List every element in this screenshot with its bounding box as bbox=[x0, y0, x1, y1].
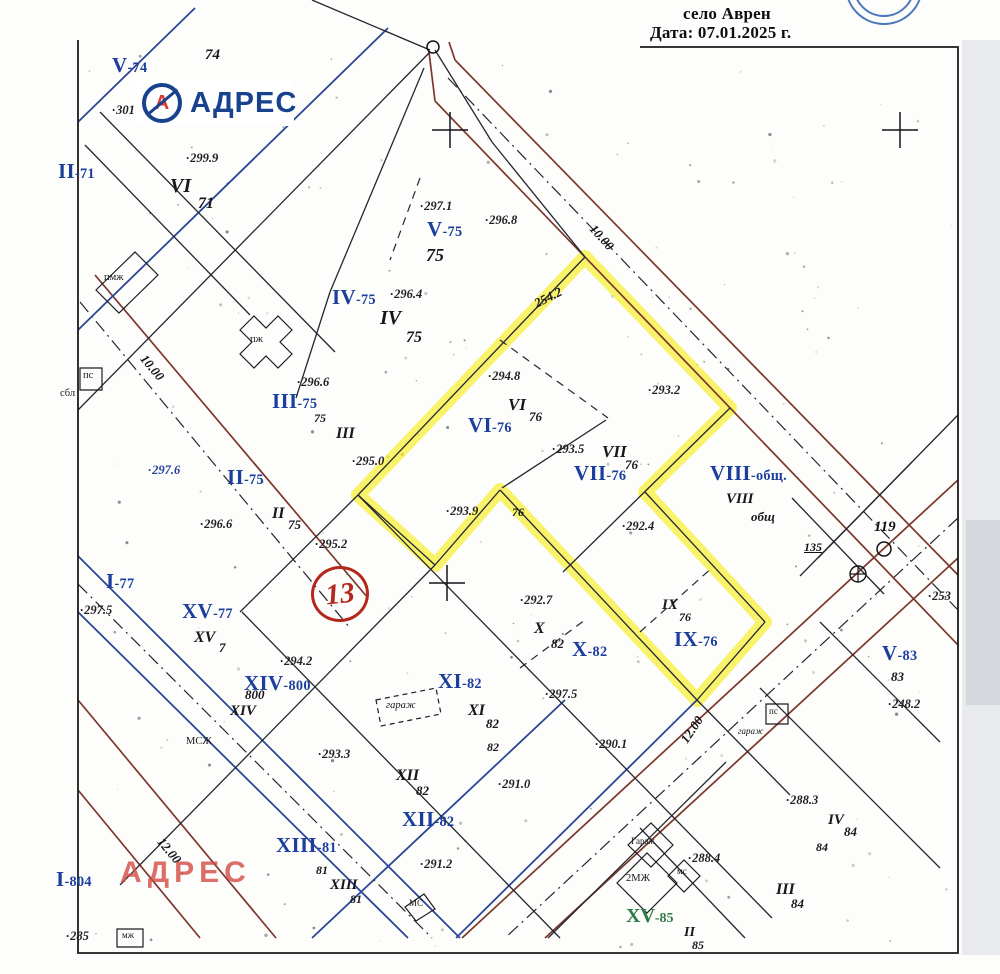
scan-speckle bbox=[648, 464, 650, 466]
parcel-label: XIII-81 bbox=[276, 834, 337, 856]
elevation-label: 297.6 bbox=[148, 464, 180, 477]
scan-speckle bbox=[562, 633, 564, 635]
point-marker-ring bbox=[427, 41, 439, 53]
scan-speckle bbox=[677, 435, 679, 437]
scan-speckle bbox=[542, 697, 544, 699]
scan-speckle bbox=[89, 70, 91, 72]
scan-speckle bbox=[661, 744, 662, 745]
building-label: гараж bbox=[738, 727, 763, 736]
scan-speckle bbox=[453, 354, 455, 356]
parcel-label: XI-82 bbox=[438, 670, 482, 692]
scan-speckle bbox=[803, 266, 805, 268]
parcel-boundary-line bbox=[492, 142, 585, 257]
elevation-label: 296.4 bbox=[390, 288, 422, 301]
elevation-label: 294.2 bbox=[280, 655, 312, 668]
handwritten-parcel-label: 76 bbox=[512, 506, 524, 519]
scan-speckle bbox=[814, 298, 815, 299]
elevation-label: 253 bbox=[928, 590, 951, 603]
scan-speckle bbox=[833, 492, 835, 494]
elevation-label: 296.8 bbox=[485, 214, 517, 227]
elevation-label: 288.4 bbox=[688, 852, 720, 865]
scan-speckle bbox=[672, 721, 673, 722]
scan-speckle bbox=[812, 671, 815, 674]
scan-speckle bbox=[590, 808, 592, 810]
building-label: мс bbox=[677, 867, 687, 876]
parcel-boundary-line bbox=[312, 0, 430, 50]
map-frame bbox=[78, 40, 958, 953]
point-number-label: 135 bbox=[804, 541, 822, 554]
scan-speckle bbox=[840, 629, 843, 632]
scan-speckle bbox=[487, 161, 490, 164]
adres-watermark: АДРЕС bbox=[120, 856, 251, 890]
district-number: 13 bbox=[324, 576, 356, 612]
handwritten-parcel-label: 75 bbox=[314, 412, 326, 425]
building-label: МС bbox=[409, 899, 423, 908]
scan-speckle bbox=[917, 120, 920, 123]
elevation-label: 293.9 bbox=[446, 505, 478, 518]
scan-speckle bbox=[457, 847, 459, 849]
scan-speckle bbox=[637, 656, 639, 658]
handwritten-parcel-label: II bbox=[272, 506, 284, 523]
building-outline bbox=[240, 316, 292, 368]
handwritten-parcel-label: 76 bbox=[679, 611, 691, 624]
scan-speckle bbox=[703, 361, 705, 363]
parcel-label: I-77 bbox=[106, 570, 134, 592]
road-edge-line bbox=[462, 480, 958, 938]
handwritten-parcel-label: 84 bbox=[844, 825, 857, 839]
scan-speckle bbox=[266, 312, 268, 314]
scan-speckle bbox=[808, 534, 811, 537]
scan-speckle bbox=[655, 246, 657, 248]
handwritten-parcel-label: 82 bbox=[486, 717, 499, 731]
building-label: сбл bbox=[60, 388, 75, 399]
parcel-label: VII-76 bbox=[574, 462, 626, 484]
parcel-label: V-75 bbox=[427, 218, 462, 240]
scan-speckle bbox=[918, 545, 919, 546]
building-label: гараж bbox=[386, 700, 416, 711]
building-label: пмж bbox=[104, 272, 124, 283]
scan-speckle bbox=[466, 348, 467, 349]
scan-speckle bbox=[802, 310, 804, 312]
scan-speckle bbox=[445, 632, 446, 633]
scan-speckle bbox=[627, 142, 629, 144]
road-edge-line bbox=[78, 700, 276, 938]
scan-speckle bbox=[630, 943, 633, 946]
elevation-label: 291.2 bbox=[420, 858, 452, 871]
scan-speckle bbox=[114, 631, 117, 634]
scan-speckle bbox=[388, 607, 391, 610]
scan-speckle bbox=[628, 336, 629, 337]
scan-speckle bbox=[880, 104, 881, 105]
scan-speckle bbox=[284, 903, 286, 905]
building-label: пс bbox=[83, 370, 93, 381]
scan-speckle bbox=[549, 90, 552, 93]
building-label: мж bbox=[122, 931, 134, 940]
scan-speckle bbox=[407, 672, 409, 674]
parcel-label: V-83 bbox=[882, 642, 917, 664]
handwritten-parcel-label: IV bbox=[828, 813, 844, 829]
scan-speckle bbox=[852, 864, 855, 867]
adres-logo: А АДРЕС bbox=[136, 80, 294, 126]
scan-speckle bbox=[224, 721, 225, 722]
scan-speckle bbox=[720, 754, 723, 757]
handwritten-parcel-label: 800 bbox=[245, 688, 265, 702]
scan-speckle bbox=[895, 713, 898, 716]
road-edge-line bbox=[429, 52, 435, 101]
elevation-label: 293.3 bbox=[318, 748, 350, 761]
scan-speckle bbox=[212, 218, 213, 219]
scan-speckle bbox=[441, 928, 444, 931]
scan-speckle bbox=[823, 125, 824, 126]
handwritten-parcel-label: 71 bbox=[198, 196, 214, 213]
elevation-label: 285 bbox=[66, 930, 89, 943]
scan-speckle bbox=[881, 442, 883, 444]
scan-speckle bbox=[531, 615, 532, 616]
scan-speckle bbox=[264, 934, 267, 937]
handwritten-parcel-label: 84 bbox=[816, 841, 828, 854]
map-header-village: село Аврен bbox=[683, 4, 771, 24]
elevation-label: 293.5 bbox=[552, 443, 584, 456]
parcel-label: I-804 bbox=[56, 868, 92, 890]
circled-a-icon: А bbox=[142, 83, 182, 123]
parcel-boundary-line bbox=[435, 490, 500, 565]
handwritten-parcel-label: 81 bbox=[350, 893, 362, 906]
scan-speckle bbox=[724, 284, 725, 285]
scan-speckle bbox=[219, 303, 222, 306]
parcel-label: III-75 bbox=[272, 390, 317, 412]
point-number-label: 119 bbox=[874, 520, 896, 536]
handwritten-parcel-label: XI bbox=[468, 703, 485, 720]
scan-speckle bbox=[689, 164, 691, 166]
scan-speckle bbox=[888, 877, 890, 879]
elevation-label: 288.3 bbox=[786, 794, 818, 807]
elevation-label: 293.2 bbox=[648, 384, 680, 397]
handwritten-parcel-label: 82 bbox=[551, 637, 564, 651]
scan-speckle bbox=[487, 138, 489, 140]
scan-speckle bbox=[333, 791, 334, 792]
handwritten-parcel-label: 75 bbox=[406, 330, 422, 347]
scan-speckle bbox=[876, 595, 878, 597]
scan-speckle bbox=[282, 126, 284, 128]
scan-speckle bbox=[117, 464, 118, 465]
scan-speckle bbox=[793, 197, 794, 198]
scan-speckle bbox=[267, 873, 270, 876]
parcel-label: XII-82 bbox=[402, 808, 454, 830]
scan-speckle bbox=[320, 187, 322, 189]
scan-speckle bbox=[545, 253, 547, 255]
scan-speckle bbox=[815, 351, 816, 352]
elevation-label: 248.2 bbox=[888, 698, 920, 711]
elevation-label: 290.1 bbox=[595, 738, 627, 751]
scan-speckle bbox=[868, 852, 871, 855]
handwritten-parcel-label: 85 bbox=[692, 939, 704, 952]
scan-speckle bbox=[404, 357, 407, 360]
parcel-label: II-71 bbox=[58, 160, 95, 182]
scan-speckle bbox=[727, 896, 730, 899]
scan-speckle bbox=[697, 180, 700, 183]
stamp-arc-icon bbox=[846, 0, 922, 24]
scan-speckle bbox=[640, 463, 642, 465]
scan-speckle bbox=[308, 186, 310, 188]
scan-speckle bbox=[783, 403, 785, 405]
scan-speckle bbox=[322, 532, 324, 534]
handwritten-parcel-label: 7 bbox=[219, 641, 226, 655]
scan-speckle bbox=[416, 380, 417, 381]
parcel-label: IV-75 bbox=[332, 286, 376, 308]
handwritten-parcel-label: 83 bbox=[891, 670, 904, 684]
scan-speckle bbox=[331, 58, 332, 59]
parcel-boundary-line bbox=[435, 50, 492, 142]
elevation-label: 295.2 bbox=[315, 538, 347, 551]
scan-speckle bbox=[918, 691, 919, 692]
handwritten-parcel-label: IX bbox=[662, 598, 678, 614]
scan-speckle bbox=[118, 501, 121, 504]
stamp-arc-icon bbox=[854, 0, 914, 16]
scan-speckle bbox=[732, 181, 734, 183]
scan-speckle bbox=[817, 286, 820, 289]
handwritten-parcel-label: IV bbox=[380, 308, 401, 329]
scan-speckle bbox=[951, 225, 952, 226]
scan-speckle bbox=[619, 946, 621, 948]
elevation-label: 296.6 bbox=[200, 518, 232, 531]
handwritten-parcel-label: 82 bbox=[487, 741, 499, 754]
scanned-map-page: село Аврен Дата: 07.01.2025 г. А АДРЕС 1… bbox=[0, 0, 1000, 974]
scan-speckle bbox=[804, 639, 807, 642]
elevation-label: 292.4 bbox=[622, 520, 654, 533]
building-label: Гараж bbox=[631, 837, 655, 846]
elevation-label: 297.5 bbox=[80, 604, 112, 617]
scan-speckle bbox=[945, 888, 947, 890]
scan-speckle bbox=[166, 739, 168, 741]
handwritten-parcel-label: X bbox=[534, 621, 545, 638]
scan-speckle bbox=[389, 270, 391, 272]
scan-speckle bbox=[226, 230, 229, 233]
page-edge-shadow bbox=[962, 40, 1000, 955]
scan-speckle bbox=[652, 297, 653, 298]
scan-speckle bbox=[234, 566, 237, 569]
scan-speckle bbox=[617, 154, 619, 156]
scan-speckle bbox=[161, 747, 162, 748]
scan-speckle bbox=[464, 339, 466, 341]
scan-speckle bbox=[807, 328, 809, 330]
scan-speckle bbox=[856, 819, 858, 821]
scan-speckle bbox=[188, 268, 189, 269]
scan-speckle bbox=[237, 667, 240, 670]
scan-speckle bbox=[125, 541, 128, 544]
scan-speckle bbox=[705, 879, 708, 882]
scan-speckle bbox=[889, 940, 891, 942]
parcel-boundary-line bbox=[358, 495, 435, 565]
scan-speckle bbox=[669, 296, 670, 297]
handwritten-parcel-label: 76 bbox=[529, 410, 542, 424]
scan-speckle bbox=[200, 491, 202, 493]
scan-speckle bbox=[786, 252, 789, 255]
elevation-label: 297.1 bbox=[420, 200, 452, 213]
parcel-label: X-82 bbox=[572, 638, 607, 660]
scan-speckle bbox=[385, 371, 388, 374]
handwritten-parcel-label: XIV bbox=[230, 704, 256, 720]
handwritten-parcel-label: 75 bbox=[288, 518, 301, 532]
scan-speckle bbox=[637, 660, 640, 663]
scan-speckle bbox=[517, 640, 520, 643]
scan-speckle bbox=[524, 819, 527, 822]
handwritten-parcel-label: общ bbox=[751, 510, 775, 524]
scan-speckle bbox=[689, 307, 692, 310]
parcel-label-green: XV-85 bbox=[626, 906, 674, 927]
scan-speckle bbox=[449, 341, 451, 343]
scan-speckle bbox=[787, 624, 789, 626]
handwritten-parcel-label: 75 bbox=[426, 246, 444, 265]
scan-speckle bbox=[480, 541, 482, 543]
handwritten-parcel-label: VII bbox=[602, 443, 627, 461]
scan-speckle bbox=[380, 159, 383, 162]
scan-speckle bbox=[502, 65, 503, 66]
elevation-label: 292.7 bbox=[520, 594, 552, 607]
building-label: 2МЖ bbox=[626, 873, 650, 884]
parcel-label: II-75 bbox=[227, 466, 264, 488]
scan-speckle bbox=[459, 821, 462, 824]
scan-speckle bbox=[545, 133, 548, 136]
scan-speckle bbox=[857, 307, 859, 309]
elevation-label: 301 bbox=[112, 104, 135, 117]
scan-speckle bbox=[150, 938, 153, 941]
scan-speckle bbox=[831, 182, 833, 184]
scan-speckle bbox=[177, 204, 179, 206]
handwritten-parcel-label: 81 bbox=[316, 864, 328, 877]
handwritten-parcel-label: VIII bbox=[726, 492, 754, 508]
scan-speckle bbox=[191, 146, 193, 148]
parcel-label: VI-76 bbox=[468, 414, 512, 436]
handwritten-parcel-label: VI bbox=[508, 396, 526, 414]
scan-speckle bbox=[841, 181, 842, 182]
handwritten-parcel-label: 82 bbox=[416, 784, 429, 798]
scan-speckle bbox=[208, 764, 211, 767]
elevation-label: 299.9 bbox=[186, 152, 218, 165]
parcel-label: XV-77 bbox=[182, 600, 233, 622]
building-label: пс bbox=[769, 707, 778, 716]
building-label: МСЖ bbox=[186, 736, 212, 747]
scan-speckle bbox=[138, 717, 141, 720]
parcel-boundary-line bbox=[100, 112, 335, 352]
dashed-boundary-line bbox=[390, 178, 420, 260]
scan-speckle bbox=[640, 353, 642, 355]
handwritten-parcel-label: 76 bbox=[625, 458, 638, 472]
parcel-boundary-line bbox=[85, 145, 250, 315]
scan-speckle bbox=[380, 941, 381, 942]
scan-speckle bbox=[772, 149, 773, 150]
map-header-date: Дата: 07.01.2025 г. bbox=[650, 23, 791, 43]
parcel-boundary-line bbox=[820, 622, 940, 742]
scan-speckle bbox=[740, 71, 742, 73]
scan-speckle bbox=[340, 833, 342, 835]
handwritten-parcel-label: III bbox=[336, 426, 355, 443]
scan-speckle bbox=[513, 623, 515, 625]
scan-speckle bbox=[685, 758, 687, 760]
parcel-label: V-74 bbox=[112, 54, 147, 76]
scan-speckle bbox=[768, 133, 771, 136]
handwritten-parcel-label: VI bbox=[170, 176, 191, 197]
scan-speckle bbox=[868, 656, 869, 657]
scan-speckle bbox=[335, 96, 338, 99]
scan-speckle bbox=[117, 789, 118, 790]
scan-speckle bbox=[172, 406, 174, 408]
handwritten-parcel-label: 84 bbox=[791, 897, 804, 911]
elevation-label: 291.0 bbox=[498, 778, 530, 791]
building-label: пж bbox=[250, 334, 263, 345]
parcel-label: IX-76 bbox=[674, 628, 718, 650]
parcel-boundary-line bbox=[330, 68, 424, 292]
scan-speckle bbox=[773, 159, 776, 162]
scan-speckle bbox=[95, 933, 96, 934]
scan-speckle bbox=[827, 337, 830, 340]
elevation-label: 296.6 bbox=[297, 376, 329, 389]
blue-boundary-line bbox=[456, 700, 697, 938]
scan-speckle bbox=[435, 946, 436, 947]
road-edge-line bbox=[449, 42, 455, 60]
elevation-label: 294.8 bbox=[488, 370, 520, 383]
logo-text: АДРЕС bbox=[190, 87, 297, 120]
handwritten-parcel-label: XV bbox=[194, 630, 215, 647]
elevation-label: 297.5 bbox=[545, 688, 577, 701]
page-edge-shadow bbox=[966, 520, 1000, 705]
scan-speckle bbox=[349, 660, 351, 662]
elevation-label: 295.0 bbox=[352, 455, 384, 468]
scan-speckle bbox=[446, 426, 449, 429]
scan-speckle bbox=[795, 565, 797, 567]
scan-speckle bbox=[411, 596, 412, 597]
handwritten-parcel-label: 74 bbox=[205, 48, 220, 64]
scan-speckle bbox=[311, 430, 314, 433]
scan-speckle bbox=[238, 313, 239, 314]
scan-speckle bbox=[541, 450, 544, 453]
parcel-label: VIII-общ. bbox=[710, 462, 787, 484]
scan-speckle bbox=[699, 598, 702, 601]
scan-speckle bbox=[510, 656, 513, 659]
scan-speckle bbox=[794, 252, 795, 253]
scan-speckle bbox=[247, 296, 250, 299]
scan-speckle bbox=[424, 292, 427, 295]
scan-speckle bbox=[313, 927, 316, 930]
scan-speckle bbox=[846, 919, 848, 921]
